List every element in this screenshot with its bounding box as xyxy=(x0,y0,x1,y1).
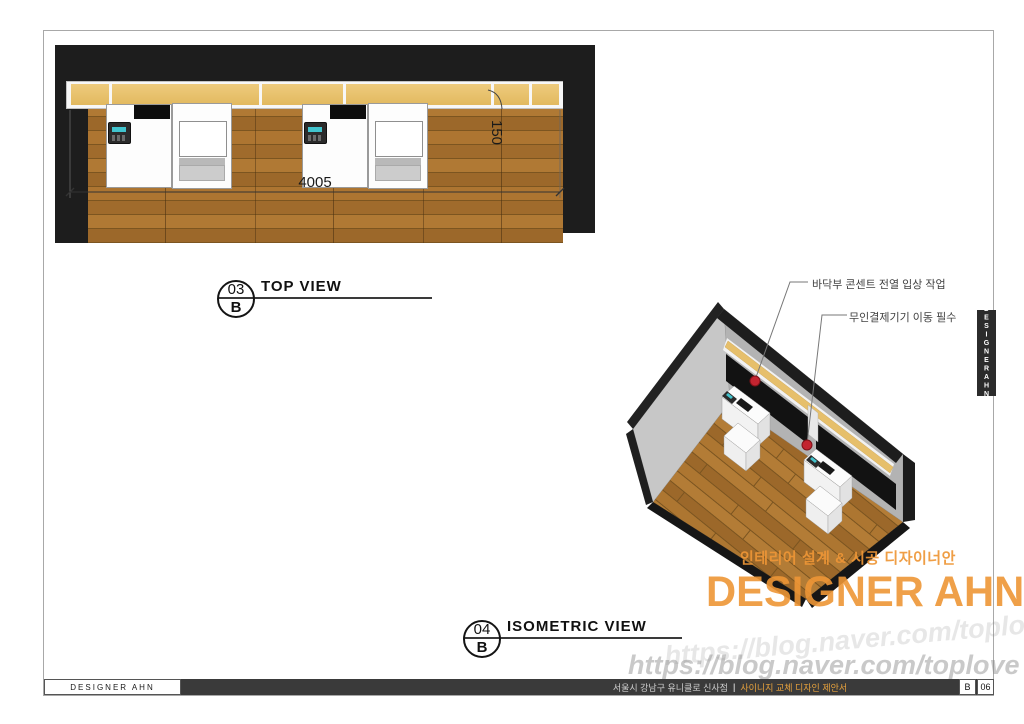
label-number-isoview: 04 xyxy=(463,621,501,638)
watermark-tagline: 인테리어 설계 & 시공 디자이너안 xyxy=(740,547,956,568)
label-grid-topview: B xyxy=(217,299,255,316)
iso-right-wall-edge xyxy=(903,454,915,522)
footer-brand-text: DESIGNER AHN xyxy=(70,683,154,692)
side-tab: DESIGNERAHN xyxy=(977,310,996,396)
dim-width-text: 4005 xyxy=(298,174,331,191)
footer-center: 서울시 강남구 유니클로 신사점 | 사이니지 교체 디자인 제안서 xyxy=(560,679,900,695)
footer-separator: | xyxy=(733,682,735,692)
watermark-url: https://blog.naver.com/toplove xyxy=(628,650,1020,681)
footer-sheet-row-text: B xyxy=(964,682,970,692)
label-number-topview: 03 xyxy=(217,281,255,298)
drawing-sheet: 4005 150 03 B TOP VIEW xyxy=(0,0,1024,724)
dim-arc-leader xyxy=(488,90,502,109)
title-isometric-view: ISOMETRIC VIEW xyxy=(507,618,647,635)
footer-doc-title: 사이니지 교체 디자인 제안서 xyxy=(740,681,847,694)
footer-sheet-row: B xyxy=(959,679,976,695)
watermark-brand: DESIGNER AHN xyxy=(706,568,1024,617)
annotation-kiosk: 무인결제기기 이동 필수 xyxy=(849,309,956,325)
footer-sheet-number-text: 06 xyxy=(980,682,990,692)
footer-brand-box: DESIGNER AHN xyxy=(44,679,181,695)
footer-project-text: 서울시 강남구 유니클로 신사점 xyxy=(613,681,728,694)
dim-shelf-text: 150 xyxy=(488,120,505,145)
marker-kiosk xyxy=(802,440,812,450)
footer-sheet-number: 06 xyxy=(977,679,994,695)
side-tab-text: DESIGNERAHN xyxy=(983,306,990,400)
annotation-outlet: 바닥부 콘센트 전열 입상 작업 xyxy=(812,276,946,292)
label-grid-isoview: B xyxy=(463,639,501,656)
marker-outlet xyxy=(750,376,760,386)
title-top-view: TOP VIEW xyxy=(261,278,342,295)
top-view-drawing: 4005 150 xyxy=(40,30,610,260)
dimension-overlay: 4005 150 xyxy=(40,30,610,260)
